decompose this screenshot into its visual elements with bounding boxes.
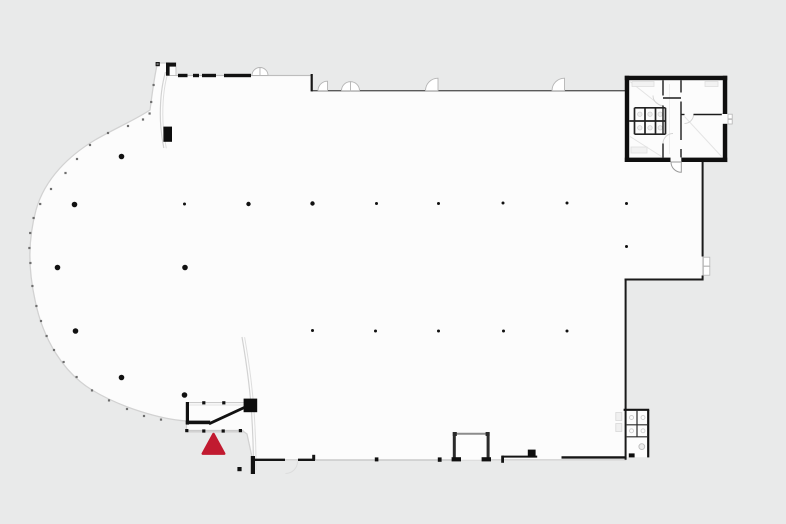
- toilet-fixture: [648, 126, 652, 130]
- column-large: [119, 154, 125, 160]
- column-large: [119, 375, 125, 381]
- column-small: [311, 329, 314, 332]
- facade-mullion-tick: [127, 125, 129, 127]
- track-post: [202, 429, 205, 432]
- vestibule-wall: [453, 432, 456, 461]
- facade-mullion-tick: [33, 217, 35, 219]
- wall-dash: [178, 74, 188, 77]
- entrance-pier: [244, 399, 258, 413]
- facade-mullion-tick: [150, 101, 152, 103]
- facade-mullion-tick: [153, 84, 155, 86]
- vestibule-foot: [452, 457, 461, 461]
- wall-post: [438, 457, 442, 461]
- facade-mullion-tick: [39, 203, 41, 205]
- facade-mullion-tick: [89, 144, 91, 146]
- column-small: [566, 202, 569, 205]
- track-post: [239, 429, 242, 432]
- fixture: [616, 413, 622, 421]
- facade-mullion-tick: [149, 112, 151, 114]
- column-large: [55, 265, 61, 271]
- column-small: [502, 330, 505, 333]
- wall-dash: [224, 74, 251, 77]
- sink-fixture: [639, 444, 645, 450]
- column-small: [375, 202, 378, 205]
- track-post: [222, 429, 225, 432]
- toilet-fixture: [658, 112, 662, 116]
- toilet-fixture: [638, 112, 642, 116]
- wall-corner: [166, 63, 170, 76]
- column-small: [625, 245, 628, 248]
- toilet-fixture: [658, 126, 662, 130]
- door-threshold: [629, 453, 635, 457]
- door-marker: [728, 114, 732, 119]
- column-small: [374, 330, 377, 333]
- floor-area: [30, 63, 727, 460]
- facade-mullion-tick: [29, 262, 31, 264]
- column-large: [73, 328, 79, 334]
- door-marker: [728, 119, 732, 124]
- column-small: [566, 330, 569, 333]
- fixture: [616, 424, 622, 432]
- facade-mullion-tick: [46, 335, 48, 337]
- facade-mullion-tick: [142, 118, 144, 120]
- facade-mullion-tick: [64, 172, 66, 174]
- facade-mullion-tick: [76, 158, 78, 160]
- column-small: [437, 330, 440, 333]
- wall-dash: [193, 74, 199, 77]
- counter: [631, 147, 647, 153]
- facade-mullion-tick: [28, 247, 30, 249]
- facade-mullion-tick: [50, 188, 52, 190]
- track-post: [202, 401, 205, 404]
- facade-mullion-tick: [160, 419, 162, 421]
- toilet-fixture: [638, 126, 642, 130]
- entrance-wall: [186, 421, 210, 425]
- column-small: [437, 202, 440, 205]
- wall-post: [375, 457, 379, 461]
- facade-mullion-tick: [107, 132, 109, 134]
- block-wall: [625, 76, 727, 80]
- facade-mullion-tick: [40, 320, 42, 322]
- wall-post: [312, 455, 315, 460]
- counter: [632, 82, 654, 87]
- column-small: [502, 202, 505, 205]
- block-wall: [625, 76, 629, 162]
- floorplan-viewport: [0, 0, 786, 524]
- track-post: [222, 401, 225, 404]
- wall-post: [237, 467, 241, 471]
- column-medium: [310, 201, 314, 205]
- vestibule-corner: [453, 432, 457, 436]
- facade-mullion-tick: [91, 389, 93, 391]
- facade-mullion-tick: [35, 305, 37, 307]
- wall-dash: [202, 74, 216, 77]
- wall-end: [251, 456, 255, 474]
- vestibule-wall: [487, 432, 490, 461]
- column-large: [72, 202, 78, 208]
- wall-opening: [722, 114, 728, 124]
- door-marker: [703, 257, 709, 266]
- column-pier: [528, 450, 536, 458]
- column-large: [182, 265, 188, 271]
- facade-mullion-tick: [157, 63, 159, 65]
- facade-mullion-tick: [53, 349, 55, 351]
- wall-pier: [163, 127, 172, 142]
- facade-mullion-tick: [31, 285, 33, 287]
- facade-mullion-tick: [29, 232, 31, 234]
- track-post: [185, 429, 188, 432]
- column-small: [625, 202, 628, 205]
- floor-plan-svg: [0, 0, 786, 524]
- facade-mullion-tick: [76, 376, 78, 378]
- facade-mullion-tick: [63, 361, 65, 363]
- toilet-fixture: [648, 112, 652, 116]
- counter: [705, 82, 718, 87]
- facade-mullion-tick: [126, 408, 128, 410]
- door-marker: [703, 266, 709, 275]
- column-medium: [246, 202, 250, 206]
- facade-mullion-tick: [108, 399, 110, 401]
- column-large: [182, 392, 188, 398]
- vestibule-corner: [486, 432, 490, 436]
- facade-mullion-tick: [143, 415, 145, 417]
- vestibule-floor: [457, 433, 487, 460]
- column-small: [183, 203, 186, 206]
- vestibule-foot: [482, 457, 491, 461]
